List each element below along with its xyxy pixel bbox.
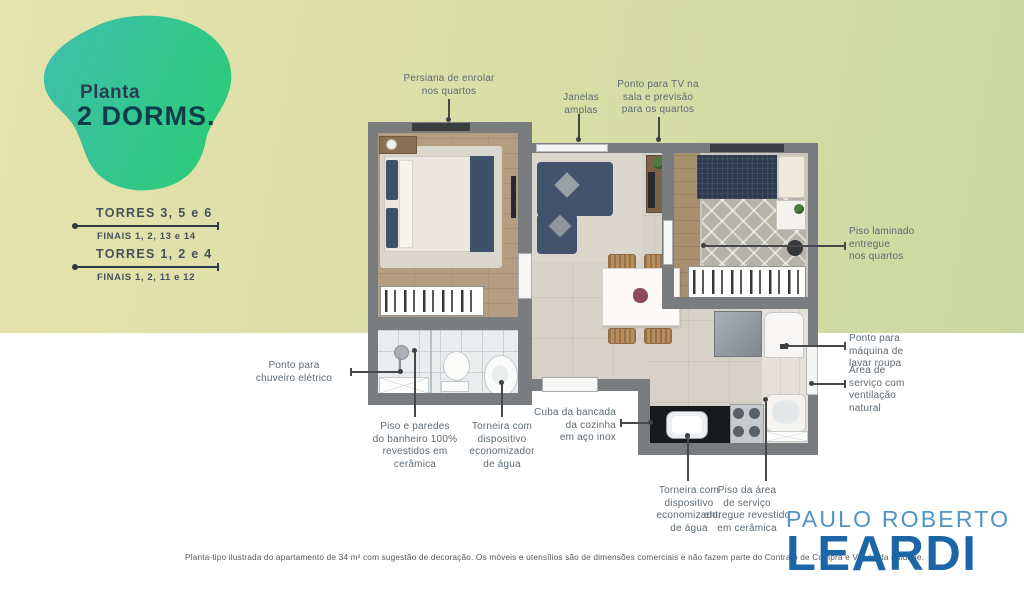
- leader-area-servico-tick: [844, 380, 846, 388]
- service-mat: [766, 431, 808, 442]
- logo-leardi: LEARDI: [786, 526, 977, 582]
- leader-maquina-dot: [784, 343, 789, 348]
- burner-4: [749, 426, 760, 437]
- callout-area-servico: Área de serviço com ventilação natural: [849, 365, 944, 415]
- wall-bedroom2-kitchen: [662, 297, 818, 309]
- leader-maquina-tick: [844, 342, 846, 350]
- towers-1-divider: [75, 225, 218, 227]
- leader-piso-laminado-tick: [844, 242, 846, 250]
- leader-janelas-dot: [576, 137, 581, 142]
- leader-piso-laminado-dot: [701, 243, 706, 248]
- leader-piso-banheiro-dot: [412, 348, 417, 353]
- shower-glass: [430, 330, 432, 393]
- callout-persiana: Persiana de enrolar nos quartos: [389, 73, 509, 98]
- burner-2: [749, 408, 760, 419]
- burner-1: [733, 408, 744, 419]
- toilet-bowl: [443, 351, 470, 381]
- fridge: [714, 311, 762, 357]
- bedroom1-tv: [511, 176, 516, 218]
- laundry-sink-basin: [772, 400, 800, 424]
- wardrobe1: [380, 286, 484, 316]
- kitchen-sink-basin: [672, 416, 702, 434]
- leader-janelas: [578, 114, 580, 139]
- window-blind-bedroom2: [710, 144, 784, 152]
- door-bedroom2: [663, 220, 673, 265]
- leader-cuba: [621, 422, 650, 424]
- living-tv: [648, 172, 655, 208]
- burner-3: [733, 426, 744, 437]
- callout-piso-laminado: Piso laminado entregue nos quartos: [849, 226, 944, 264]
- bed2-pillow: [778, 156, 805, 198]
- bedroom2-stool: [787, 240, 803, 256]
- leader-torneira-cozinha: [687, 438, 689, 481]
- callout-tv: Ponto para TV na sala e previsão para os…: [597, 79, 719, 117]
- bath-mat: [379, 377, 429, 394]
- toilet-tank: [441, 381, 469, 392]
- door-entry: [542, 377, 598, 392]
- lamp: [386, 139, 397, 150]
- bed1-pillow-navy-1: [386, 160, 398, 200]
- towers-2-title: TORRES 1, 2 e 4: [96, 247, 213, 261]
- leader-torneira-banheiro: [501, 383, 503, 417]
- bed2: [697, 155, 777, 199]
- wall-left: [368, 122, 378, 405]
- leader-tv: [658, 117, 660, 139]
- towers-1-finais: FINAIS 1, 2, 13 e 14: [97, 231, 196, 242]
- nightstand: [379, 136, 417, 154]
- leader-piso-servico: [765, 402, 767, 481]
- wardrobe2: [688, 266, 806, 298]
- leader-chuveiro: [351, 371, 400, 373]
- badge-subtitle: 2 DORMS.: [77, 101, 216, 132]
- window-living: [536, 144, 608, 152]
- wall-bedroom1-bathroom: [378, 317, 518, 330]
- washing-machine: [764, 312, 804, 358]
- door-bedroom1: [518, 253, 532, 299]
- dining-chair-3: [608, 328, 636, 344]
- table-flowers: [633, 288, 648, 303]
- callout-chuveiro: Ponto para chuveiro elétrico: [240, 360, 348, 385]
- leader-chuveiro-dot: [398, 369, 403, 374]
- towers-1-title: TORRES 3, 5 e 6: [96, 206, 213, 220]
- bed1-pillow-navy-2: [386, 208, 398, 248]
- bed1-pillow-white: [399, 160, 413, 248]
- leader-persiana: [448, 99, 450, 119]
- callout-cuba: Cuba da bancada da cozinha em aço inox: [514, 407, 616, 445]
- wall-kitchen-bottom: [638, 443, 818, 455]
- leader-maquina: [787, 345, 845, 347]
- window-blind-bedroom1: [412, 123, 470, 131]
- bed1-runner: [470, 156, 494, 252]
- leader-piso-laminado: [704, 245, 845, 247]
- leader-persiana-dot: [446, 117, 451, 122]
- dining-chair-4: [644, 328, 672, 344]
- plant-bedroom2: [794, 204, 804, 214]
- window-service: [806, 345, 818, 395]
- leader-torneira-banheiro-dot: [499, 380, 504, 385]
- leader-area-servico-dot: [809, 381, 814, 386]
- towers-2-finais: FINAIS 1, 2, 11 e 12: [97, 272, 195, 283]
- leader-piso-banheiro: [414, 352, 416, 417]
- shower-head: [394, 345, 409, 360]
- page: Planta 2 DORMS. TORRES 3, 5 e 6 FINAIS 1…: [0, 0, 1024, 604]
- wall-bathroom-bottom: [368, 393, 532, 405]
- towers-2-divider: [75, 266, 218, 268]
- leader-cuba-dot: [648, 420, 653, 425]
- leader-tv-dot: [656, 137, 661, 142]
- leader-area-servico: [812, 383, 845, 385]
